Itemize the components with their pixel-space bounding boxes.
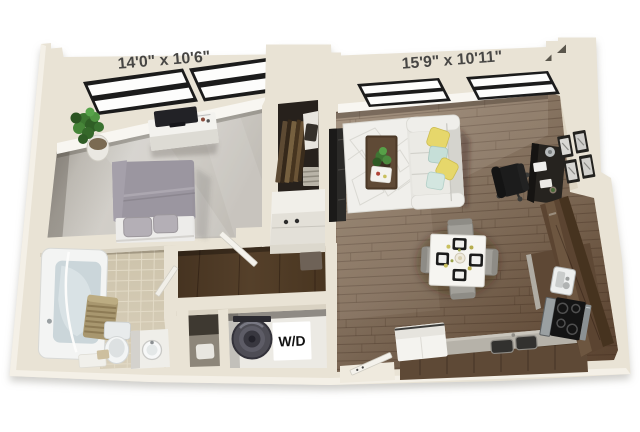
svg-text:W/D: W/D [278,333,306,350]
